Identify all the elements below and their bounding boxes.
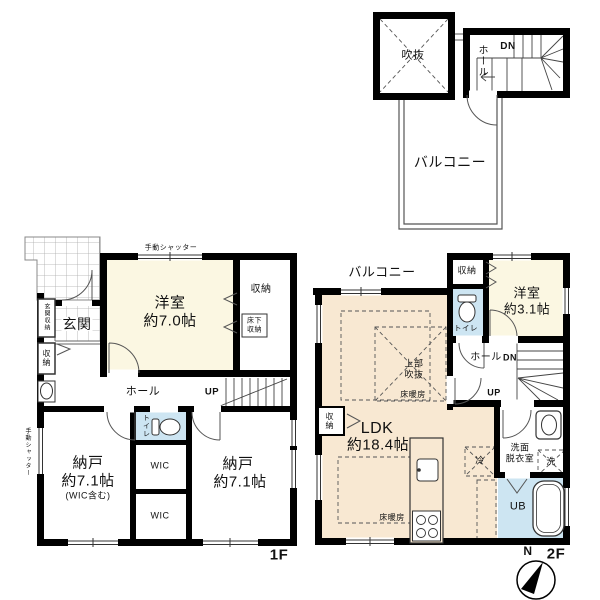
f1-storage-right-size: 約7.1帖 [213,475,266,490]
f2-up-label: UP [487,389,501,398]
stove-burner [429,529,438,538]
toilet-2f-bowl [459,302,475,322]
f1-storage-left-size: 約7.1帖 [61,474,114,489]
f2-closet-top-label: 収納 [457,267,476,276]
f2-washer-label: 洗 [546,458,556,467]
f2-ldk-name: LDK [361,421,394,437]
f1-western-room-name: 洋室 [154,296,185,311]
f1-up-label: UP [205,387,219,397]
f2-western-room-size: 約3.1帖 [504,303,551,316]
f1-closet-top-label: 収納 [251,285,272,295]
f1-floor-label: 1F [270,548,289,563]
toilet-1f-tank [152,419,159,435]
f2-western-room-name: 洋室 [513,287,540,300]
floorplan-page: 吹抜 ホール DN バルコニー 手動シャッター 洋室 約7.0帖 収納 床下 収… [0,0,600,600]
f2-hall-label: ホール [470,353,502,363]
f1-entrance-closet-label: 玄関収納 [43,303,49,331]
washbasin-bowl [542,415,557,435]
f1-toilet-label: トイレ [143,414,150,438]
compass-icon [517,561,555,599]
stove-burner [417,529,426,538]
roof-void-label: 吹抜 [402,51,425,62]
toilet-2f-tank [458,295,476,302]
f2-floor-label: 2F [547,547,566,562]
f2-balcony-label: バルコニー [348,266,415,279]
f1-entrance-label: 玄関 [62,317,93,331]
f2-heating-lower-label: 床暖房 [379,514,405,522]
f1-storage-left-name: 納戸 [72,456,103,471]
f2-dn-label: DN [503,354,517,363]
compass-north-label: N [523,545,532,557]
f1-storage-right-name: 納戸 [222,457,253,472]
stove-burner [417,516,426,525]
f1-wic-upper-label: WIC [151,462,170,471]
stove-burner [429,516,438,525]
f2-ldk-size: 約18.4帖 [347,438,409,453]
f1-storage-left-note: (WIC含む) [66,492,111,501]
bathtub-inner [537,485,561,533]
toilet-1f-bowl [160,419,180,435]
f2-bath-label: UB [510,502,526,513]
f1-wic-lower-label: WIC [151,512,170,521]
f2-heating-upper-label: 床暖房 [400,391,426,399]
hall-basin-bowl [41,383,53,399]
roof-balcony-label: バルコニー [414,155,486,169]
f2-fridge-label: 冷 [475,457,485,466]
f1-shutter-left-label: 手動シャッター [24,428,30,477]
f1-underfloor-label-1: 床下 [247,318,262,325]
roof-dn-label: DN [500,42,515,52]
f1-hall-label: ホール [126,387,161,398]
f1-closet-left-label: 収納 [42,349,50,367]
f2-washroom-label-1: 洗面 [510,444,529,453]
f2-toilet-label: トイレ [454,324,478,332]
f1-shutter-top-label: 手動シャッター [145,245,198,252]
roof-hall-label: ホール [476,45,486,78]
f1-underfloor-label-2: 収納 [247,327,262,334]
f2-washroom-label-2: 脱衣室 [506,455,535,464]
f2-closet-left-label: 収納 [325,412,333,430]
f2-void-label-1: 上部 [404,360,423,369]
kitchen-faucet [417,468,421,472]
f1-western-room-size: 約7.0帖 [143,314,196,329]
f2-void-label-2: 吹抜 [404,371,423,380]
